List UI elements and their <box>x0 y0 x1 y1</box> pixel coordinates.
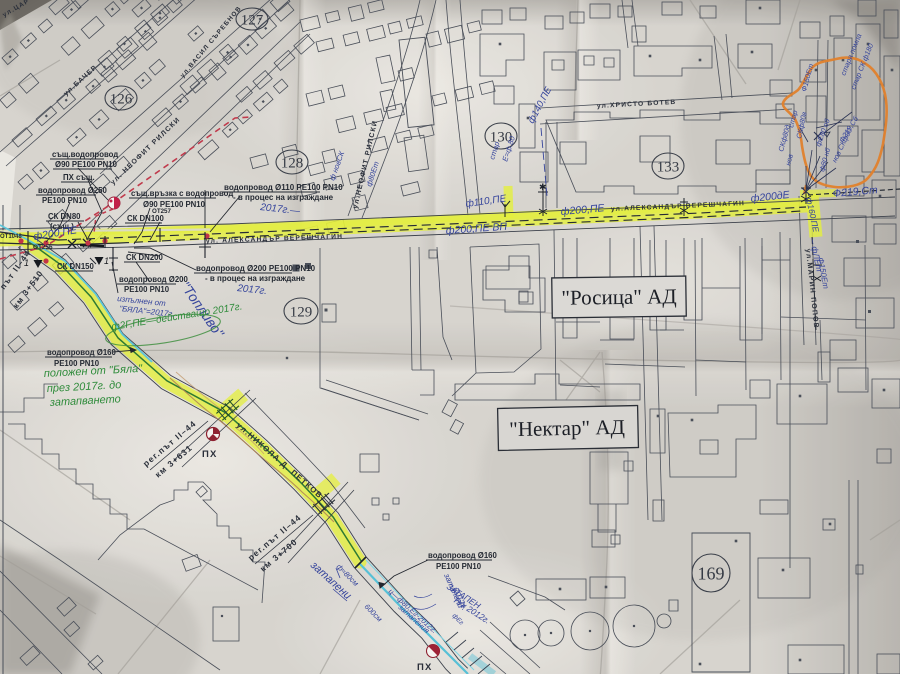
svg-text:СК DN150: СК DN150 <box>57 262 94 271</box>
svg-text:126: 126 <box>110 91 133 107</box>
svg-text:същ.връзка с водопровод: същ.връзка с водопровод <box>131 189 233 198</box>
svg-text:PE100 PN10: PE100 PN10 <box>124 285 170 294</box>
svg-text:128: 128 <box>281 155 304 171</box>
svg-text:127: 127 <box>241 12 264 28</box>
svg-text:- в процес на изграждане: - в процес на изграждане <box>205 274 306 283</box>
svg-text:"Росица" АД: "Росица" АД <box>561 284 677 310</box>
svg-text:✱: ✱ <box>539 182 547 192</box>
svg-text:ОТ1048: ОТ1048 <box>0 234 22 240</box>
svg-text:133: 133 <box>657 159 680 175</box>
svg-text:- в процес на изграждане: - в процес на изграждане <box>233 193 334 202</box>
svg-text:СК DN100: СК DN100 <box>127 214 164 223</box>
svg-text:ПХ: ПХ <box>202 449 218 460</box>
svg-text:водопровод Ø160: водопровод Ø160 <box>428 551 497 560</box>
svg-text:СК DN200: СК DN200 <box>126 253 163 262</box>
svg-text:Ø90 PE100 PN10: Ø90 PE100 PN10 <box>143 200 206 209</box>
svg-text:ОТ256: ОТ256 <box>33 244 53 251</box>
svg-text:водопровод Ø200: водопровод Ø200 <box>119 275 188 284</box>
svg-text:водопровод Ø160: водопровод Ø160 <box>47 348 116 357</box>
svg-text:водопровод Ø110 PE100 PN10: водопровод Ø110 PE100 PN10 <box>224 183 343 192</box>
svg-text:PE100 PN10: PE100 PN10 <box>42 196 88 205</box>
svg-text:"Нектар" АД: "Нектар" АД <box>509 415 625 441</box>
svg-text:ПХ същ.: ПХ същ. <box>63 173 95 182</box>
svg-text:водопровод Ø200 PE100 PN10: водопровод Ø200 PE100 PN10 <box>196 264 316 273</box>
svg-text:ПХ: ПХ <box>417 662 433 673</box>
svg-text:1: 1 <box>104 256 109 266</box>
svg-text:PE100 PN10: PE100 PN10 <box>436 562 482 571</box>
svg-text:същ.водопровод: същ.водопровод <box>52 150 118 159</box>
svg-text:Ø90 PE100 PN10: Ø90 PE100 PN10 <box>55 160 118 169</box>
svg-text:СК DN80: СК DN80 <box>48 212 81 221</box>
svg-text:129: 129 <box>290 304 313 320</box>
svg-text:водопровод Ø250: водопровод Ø250 <box>38 186 107 195</box>
svg-text:169: 169 <box>698 563 725 583</box>
